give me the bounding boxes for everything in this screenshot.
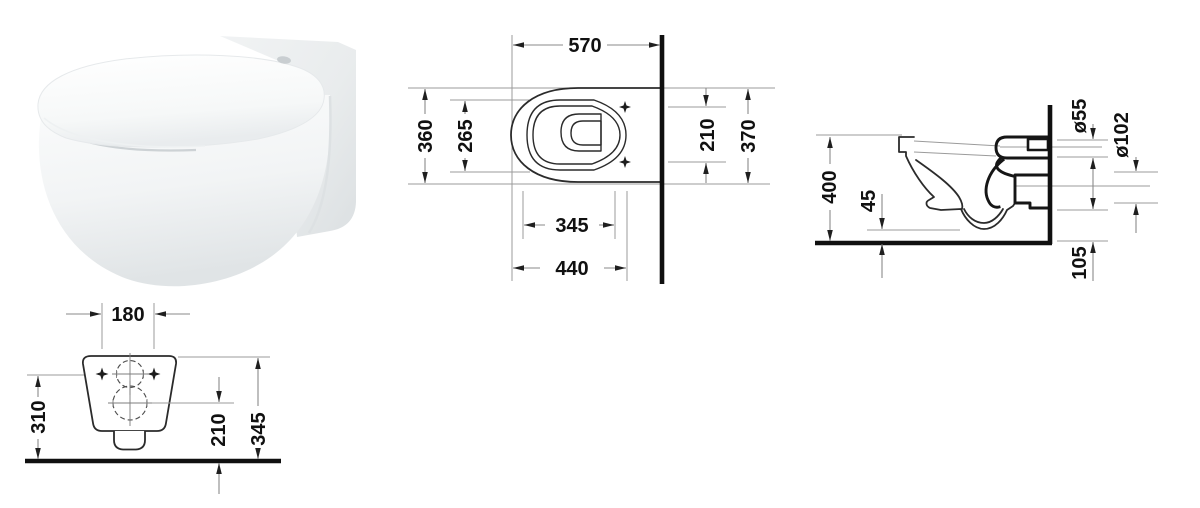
side-dim-400: 400 [819, 170, 841, 203]
plan-dim-570: 570 [568, 35, 601, 57]
dimension-sheet: 570 360 265 345 440 210 370 [0, 0, 1200, 508]
rear-dim-345: 345 [248, 412, 270, 445]
plan-dim-210: 210 [697, 118, 719, 151]
side-dim-o55: ø55 [1069, 99, 1091, 133]
product-render [38, 36, 356, 286]
plan-dim-265: 265 [455, 119, 477, 152]
side-dim-o102: ø102 [1111, 112, 1133, 158]
rear-dim-180: 180 [111, 304, 144, 326]
outlet-bump [114, 431, 145, 450]
rear-view-drawing: 180 310 210 345 [25, 303, 281, 494]
bowl-underside-inner [964, 209, 1003, 223]
top-view-drawing: 570 360 265 345 440 210 370 [408, 35, 775, 284]
rear-dim-210: 210 [208, 413, 230, 446]
toilet-seat-lid [38, 55, 324, 147]
flush-inlet-notch [1028, 139, 1048, 150]
side-dim-45: 45 [858, 190, 880, 212]
side-dim-105: 105 [1069, 246, 1091, 279]
plan-dim-440: 440 [555, 258, 588, 280]
spigot-connector-curve [997, 158, 1013, 176]
trap-siphon-curve [986, 160, 1003, 207]
plan-dim-370: 370 [738, 119, 760, 152]
plan-dim-360: 360 [415, 119, 437, 152]
rear-dim-310: 310 [28, 400, 50, 433]
side-view-drawing: 400 45 ø55 ø102 105 [815, 99, 1158, 281]
drain-outlet-spigot [1015, 175, 1050, 208]
plan-dim-345: 345 [555, 215, 588, 237]
